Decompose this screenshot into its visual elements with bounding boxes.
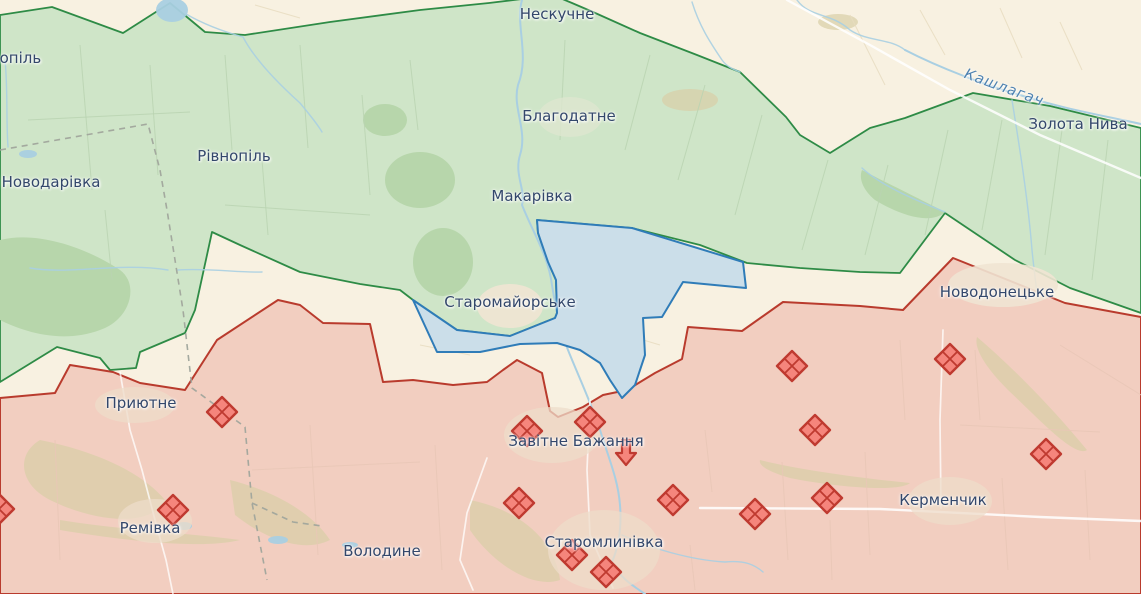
forest-patch — [363, 104, 407, 136]
map-terrain-layer — [0, 0, 1141, 594]
war-map[interactable]: НескучнеБлагодатнеМакарівкаРівнопільНово… — [0, 0, 1141, 594]
forest-patch — [385, 152, 455, 208]
terrain-patch — [662, 89, 718, 111]
forest-patch — [413, 228, 473, 296]
